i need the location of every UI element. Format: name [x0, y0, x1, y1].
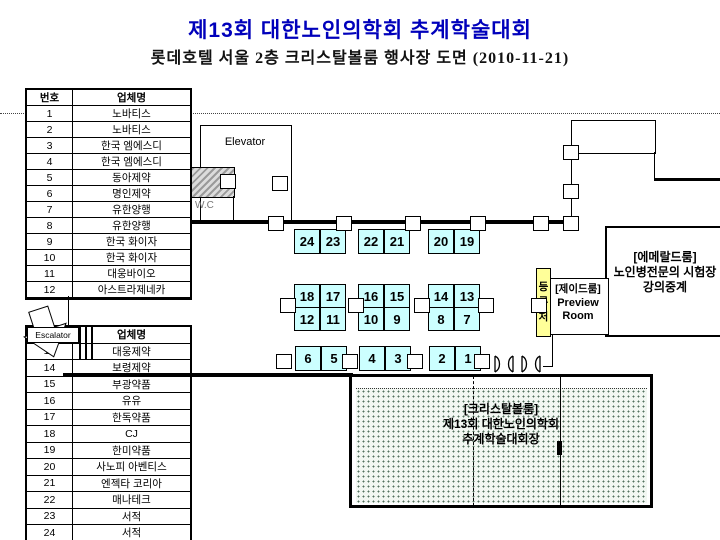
booth-18: 18 — [294, 284, 320, 308]
booth-11: 11 — [320, 307, 346, 331]
pillar — [478, 298, 494, 313]
pillar — [531, 298, 547, 313]
pillar — [276, 354, 292, 369]
table-cell-name: 아스트라제네카 — [73, 282, 190, 298]
emerald-room-line3: 강의중계 — [600, 280, 720, 295]
wc-wall — [233, 196, 234, 222]
upper-right-wall-short — [654, 152, 655, 179]
booth-8: 8 — [428, 307, 454, 331]
registration-partition — [552, 335, 553, 367]
page-title: 제13회 대한노인의학회 추계학술대회 — [0, 14, 720, 44]
table-cell-name: 한독약품 — [73, 410, 190, 427]
pillar — [474, 354, 490, 369]
pillar — [268, 216, 284, 231]
table-cell-name: 노바티스 — [73, 122, 190, 138]
table-cell-name: 한미약품 — [73, 443, 190, 460]
booth-22: 22 — [358, 229, 384, 254]
booth-7: 7 — [454, 307, 480, 331]
upper-right-thick-wall — [654, 178, 720, 181]
pillar — [533, 216, 549, 231]
booth-13: 13 — [454, 284, 480, 308]
emerald-room-name: [에메랄드룸] — [600, 250, 720, 265]
escalator-rail — [79, 325, 81, 359]
table-cell-no: 15 — [27, 377, 73, 394]
table-header-name: 업체명 — [73, 90, 190, 106]
table-cell-no: 2 — [27, 122, 73, 138]
table-cell-no: 5 — [27, 170, 73, 186]
table-cell-name: 한국 엠에스디 — [73, 154, 190, 170]
lower-corridor-wall — [63, 373, 353, 377]
booth-21: 21 — [384, 229, 410, 254]
table-cell-no: 22 — [27, 492, 73, 509]
table-cell-no: 20 — [27, 459, 73, 476]
table-header-no: 번호 — [27, 90, 73, 106]
table-cell-no: 23 — [27, 509, 73, 526]
table-cell-no: 4 — [27, 154, 73, 170]
table-cell-name: 부광약품 — [73, 377, 190, 394]
table-cell-name: 서적 — [73, 525, 190, 540]
floor-plan-page: 제13회 대한노인의학회 추계학술대회 롯데호텔 서울 2층 크리스탈볼룸 행사… — [0, 0, 720, 540]
booth-19: 19 — [454, 229, 480, 254]
booth-9: 9 — [384, 307, 410, 331]
crystal-room-line3: 추계학술대회장 — [349, 432, 653, 447]
pillar — [563, 145, 579, 160]
escalator-label: Escalator — [27, 327, 79, 343]
upper-right-room — [571, 120, 656, 154]
pillar — [414, 298, 430, 313]
table-cell-no: 9 — [27, 234, 73, 250]
table-cell-no: 3 — [27, 138, 73, 154]
table-cell-no: 16 — [27, 393, 73, 410]
table-cell-name: 한국 화이자 — [73, 250, 190, 266]
booth-17: 17 — [320, 284, 346, 308]
booth-12: 12 — [294, 307, 320, 331]
exhibitor-table-1: 번호업체명1노바티스2노바티스3한국 엠에스디4한국 엠에스디5동아제약6명인제… — [25, 88, 192, 300]
pillar — [563, 216, 579, 231]
pillar — [563, 184, 579, 199]
page-subtitle: 롯데호텔 서울 2층 크리스탈볼룸 행사장 도면 (2010-11-21) — [0, 44, 720, 68]
table-cell-name: 엔젝타 코리아 — [73, 476, 190, 493]
upper-corridor-wall — [190, 220, 573, 224]
table-cell-name: 서적 — [73, 509, 190, 526]
pillar — [336, 216, 352, 231]
table-cell-no: 7 — [27, 202, 73, 218]
table-cell-name: 한국 화이자 — [73, 234, 190, 250]
table-cell-no: 10 — [27, 250, 73, 266]
booth-15: 15 — [384, 284, 410, 308]
booth-4: 4 — [359, 346, 385, 371]
table-cell-name: 동아제약 — [73, 170, 190, 186]
table-cell-name: 노바티스 — [73, 106, 190, 122]
table-cell-name: 매나테크 — [73, 492, 190, 509]
crystal-room-name: [크리스탈볼룸] — [349, 402, 653, 417]
pillar — [280, 298, 296, 313]
pillar — [405, 216, 421, 231]
emerald-room-label: [에메랄드룸] 노인병전문의 시험장 강의중계 — [600, 250, 720, 295]
elevator-label: Elevator — [205, 136, 285, 148]
table-cell-no: 19 — [27, 443, 73, 460]
booth-23: 23 — [320, 229, 346, 254]
table-cell-no: 6 — [27, 186, 73, 202]
booth-14: 14 — [428, 284, 454, 308]
wc-label: W.C — [195, 200, 214, 211]
table-cell-no: 8 — [27, 218, 73, 234]
double-door-icon — [519, 355, 543, 373]
table-cell-no: 11 — [27, 266, 73, 282]
table-cell-name: 명인제약 — [73, 186, 190, 202]
booth-6: 6 — [295, 346, 321, 371]
booth-2: 2 — [429, 346, 455, 371]
registration-label-char: 등 — [539, 280, 549, 295]
booth-20: 20 — [428, 229, 454, 254]
pillar — [342, 354, 358, 369]
pillar — [272, 176, 288, 191]
table-cell-no: 12 — [27, 282, 73, 298]
table-cell-name: 유한양행 — [73, 202, 190, 218]
escalator-rail — [85, 325, 87, 359]
pillar — [220, 174, 236, 189]
table-cell-no: 1 — [27, 106, 73, 122]
double-door-icon — [492, 355, 516, 373]
table-cell-name: 유한양행 — [73, 218, 190, 234]
emerald-room-line2: 노인병전문의 시험장 — [600, 265, 720, 280]
pillar — [348, 298, 364, 313]
table-cell-name: 사노피 아벤티스 — [73, 459, 190, 476]
jade-room-label: [제이드룸] Preview Room — [549, 283, 607, 324]
table-cell-name: CJ — [73, 426, 190, 443]
table-cell-no: 17 — [27, 410, 73, 427]
table-cell-no: 18 — [27, 426, 73, 443]
jade-room-line3: Room — [549, 310, 607, 324]
crystal-room-line2: 제13회 대한노인의학회 — [349, 417, 653, 432]
booth-24: 24 — [294, 229, 320, 254]
crystal-ballroom-label: [크리스탈볼룸] 제13회 대한노인의학회 추계학술대회장 — [349, 402, 653, 447]
table-cell-no: 21 — [27, 476, 73, 493]
escalator-rail — [91, 325, 93, 359]
table-cell-no: 24 — [27, 525, 73, 540]
pillar — [407, 354, 423, 369]
table-cell-name: 대웅바이오 — [73, 266, 190, 282]
door-connector-line — [543, 366, 552, 367]
jade-room-name: [제이드룸] — [549, 283, 607, 297]
table-cell-name: 한국 엠에스디 — [73, 138, 190, 154]
jade-room-line2: Preview — [549, 297, 607, 311]
table-cell-name: 유유 — [73, 393, 190, 410]
pillar — [470, 216, 486, 231]
